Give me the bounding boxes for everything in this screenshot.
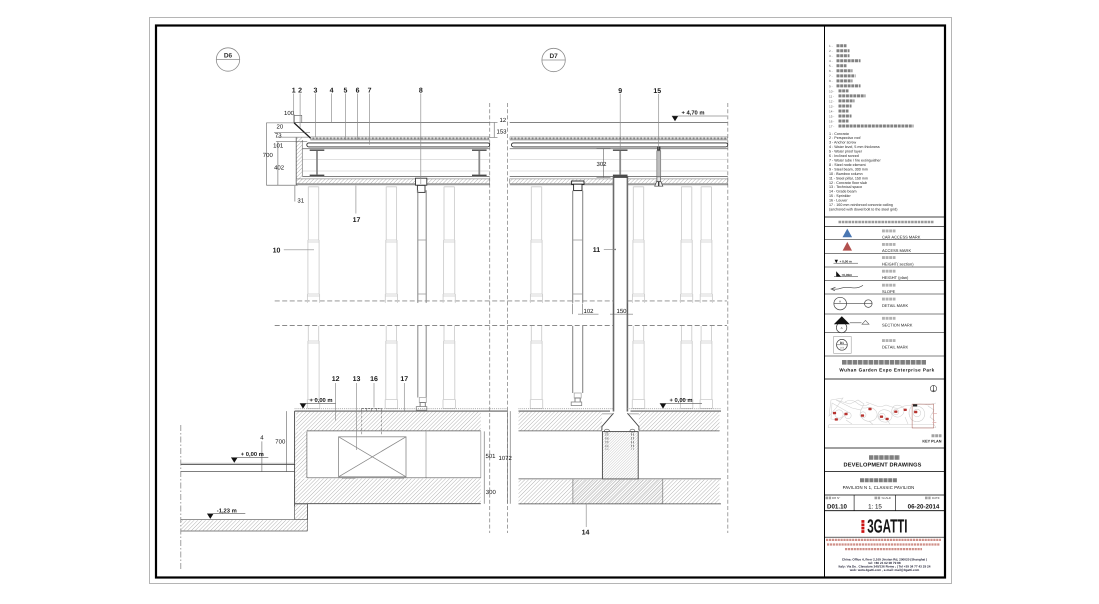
svg-text:A: A [841, 326, 843, 330]
svg-text:D6: D6 [224, 53, 233, 60]
svg-text:10: 10 [273, 247, 281, 254]
svg-text:5 - Water proof layer: 5 - Water proof layer [829, 150, 863, 154]
svg-text:+ 0,00 m: + 0,00 m [840, 259, 853, 263]
svg-text:16: 16 [370, 376, 378, 383]
svg-text:17 - 160 mm reinforced concret: 17 - 160 mm reinforced concrete ceiling [829, 203, 893, 207]
svg-text:10 - Bamboo column: 10 - Bamboo column [829, 172, 863, 176]
svg-text:HEIGHT (plan): HEIGHT (plan) [882, 275, 909, 280]
svg-text:2 - Perspective roof: 2 - Perspective roof [829, 136, 862, 140]
svg-text:6 -: 6 - [829, 69, 833, 73]
svg-text:150: 150 [616, 308, 627, 315]
svg-text:Wuhan Garden Expo Enterprise P: Wuhan Garden Expo Enterprise Park [839, 368, 934, 373]
svg-text:2 -: 2 - [829, 49, 833, 53]
svg-text:1072: 1072 [499, 455, 513, 462]
svg-text:DATE: DATE [932, 496, 940, 500]
svg-text:5 -: 5 - [829, 64, 833, 68]
svg-text:8 - Steel node element: 8 - Steel node element [829, 163, 866, 167]
svg-text:12: 12 [500, 117, 507, 124]
svg-text:16 - Louver: 16 - Louver [829, 199, 848, 203]
svg-text:73: 73 [275, 132, 282, 139]
svg-text:4: 4 [330, 88, 334, 95]
svg-text:D7: D7 [549, 53, 558, 60]
svg-text:D01.10: D01.10 [827, 504, 848, 511]
svg-text:15: 15 [653, 88, 661, 95]
svg-text:HEIGHT( section): HEIGHT( section) [882, 261, 914, 266]
svg-text:DETAIL MARK: DETAIL MARK [882, 344, 909, 349]
svg-text:8: 8 [419, 88, 423, 95]
svg-text:17: 17 [353, 217, 361, 224]
svg-text:102: 102 [583, 308, 594, 315]
svg-text:13: 13 [353, 376, 361, 383]
svg-text:ACCESS MARK: ACCESS MARK [882, 248, 911, 253]
svg-text:(anchored with dowel bolt to t: (anchored with dowel bolt to the steel g… [829, 208, 897, 212]
svg-text:100: 100 [284, 110, 295, 117]
svg-text:1 -: 1 - [829, 44, 833, 48]
svg-text:11 -: 11 - [829, 94, 834, 98]
svg-text:6 - Inclined screed: 6 - Inclined screed [829, 154, 859, 158]
svg-text:14 -: 14 - [829, 109, 834, 113]
svg-text:31: 31 [297, 198, 304, 205]
svg-text:402: 402 [274, 165, 285, 172]
svg-text:PAVILION N 1, CLASSIC PAVILION: PAVILION N 1, CLASSIC PAVILION [843, 485, 915, 490]
svg-text:9: 9 [618, 88, 622, 95]
svg-text:DETAIL MARK: DETAIL MARK [882, 303, 909, 308]
svg-text:3 -: 3 - [829, 54, 833, 58]
svg-text:4 - Water level, 5 mm thicknes: 4 - Water level, 5 mm thickness [829, 145, 880, 149]
svg-text:700: 700 [263, 152, 274, 159]
svg-text:302: 302 [597, 161, 608, 168]
svg-text:13 -: 13 - [829, 104, 834, 108]
svg-text:9 - Steel beam, 300 mm: 9 - Steel beam, 300 mm [829, 167, 868, 171]
svg-text:SLOPE: SLOPE [882, 289, 896, 294]
svg-text:17 -: 17 - [829, 124, 834, 128]
svg-text:8 -: 8 - [829, 79, 833, 83]
svg-text:11 - Steel pillar, 150 mm: 11 - Steel pillar, 150 mm [829, 176, 868, 180]
svg-text:4 -: 4 - [829, 59, 833, 63]
svg-text:6: 6 [356, 88, 360, 95]
svg-text:10 -: 10 - [829, 89, 834, 93]
svg-text:D1: D1 [840, 341, 844, 345]
svg-text:DEVELOPMENT DRAWINGS: DEVELOPMENT DRAWINGS [844, 462, 922, 468]
svg-text:7 -: 7 - [829, 74, 833, 78]
svg-text:2: 2 [298, 88, 302, 95]
svg-text:KEY PLAN: KEY PLAN [922, 440, 941, 444]
svg-text:300: 300 [486, 489, 497, 496]
svg-text:11: 11 [593, 247, 601, 254]
svg-text:1 - Concrete: 1 - Concrete [829, 132, 849, 136]
svg-text:501: 501 [486, 453, 497, 460]
svg-text:16 -: 16 - [829, 119, 834, 123]
svg-text:SCALE: SCALE [882, 496, 892, 500]
svg-text:12 -: 12 - [829, 99, 834, 103]
svg-text:700: 700 [275, 439, 286, 446]
svg-text:DR N°: DR N° [832, 496, 840, 500]
svg-text:3: 3 [314, 88, 318, 95]
svg-text:9 -: 9 - [829, 84, 833, 88]
svg-text:7 - Water tube / fire extingui: 7 - Water tube / fire extinguisher [829, 159, 881, 163]
svg-text:1:04: 1:04 [840, 347, 845, 350]
svg-text:153: 153 [497, 129, 508, 136]
svg-text:+ 4,70 m: + 4,70 m [682, 110, 705, 117]
svg-text:13 - Technical space: 13 - Technical space [829, 185, 862, 189]
svg-text:15 -: 15 - [829, 114, 834, 118]
svg-text:7: 7 [368, 88, 372, 95]
svg-text:3 - Anchor screw: 3 - Anchor screw [829, 141, 856, 145]
svg-text:CAR ACCESS MARK: CAR ACCESS MARK [882, 235, 921, 240]
svg-text:5: 5 [344, 88, 348, 95]
svg-text:15 - Sprinkler: 15 - Sprinkler [829, 194, 851, 198]
svg-text:-1,23 m: -1,23 m [217, 507, 237, 514]
svg-text:3GATTI: 3GATTI [867, 516, 907, 537]
svg-text:20: 20 [277, 123, 284, 130]
svg-text:A: A [839, 300, 841, 304]
svg-text:+ 0,00 m: + 0,00 m [310, 397, 333, 404]
svg-text:1: 1 [292, 88, 296, 95]
svg-text:1: 15: 1: 15 [868, 504, 882, 511]
svg-text:+ 0,00 m: + 0,00 m [670, 397, 693, 404]
svg-text:12: 12 [332, 376, 340, 383]
svg-text:+0,00m: +0,00m [842, 273, 853, 277]
svg-text:+ 0,00 m: + 0,00 m [241, 451, 264, 458]
svg-text:web: www.3gatti.com , e-mail:: web: www.3gatti.com , e-mail: mail@3gatt… [849, 568, 920, 572]
svg-text:101: 101 [273, 143, 284, 150]
svg-text:14 - Grade beam: 14 - Grade beam [829, 190, 857, 194]
svg-text:12 - Concrete floor slab: 12 - Concrete floor slab [829, 181, 867, 185]
svg-text:17: 17 [400, 376, 408, 383]
svg-text:14: 14 [582, 530, 590, 537]
svg-text:06-20-2014: 06-20-2014 [908, 504, 940, 511]
svg-text:SECTION MARK: SECTION MARK [882, 322, 913, 327]
